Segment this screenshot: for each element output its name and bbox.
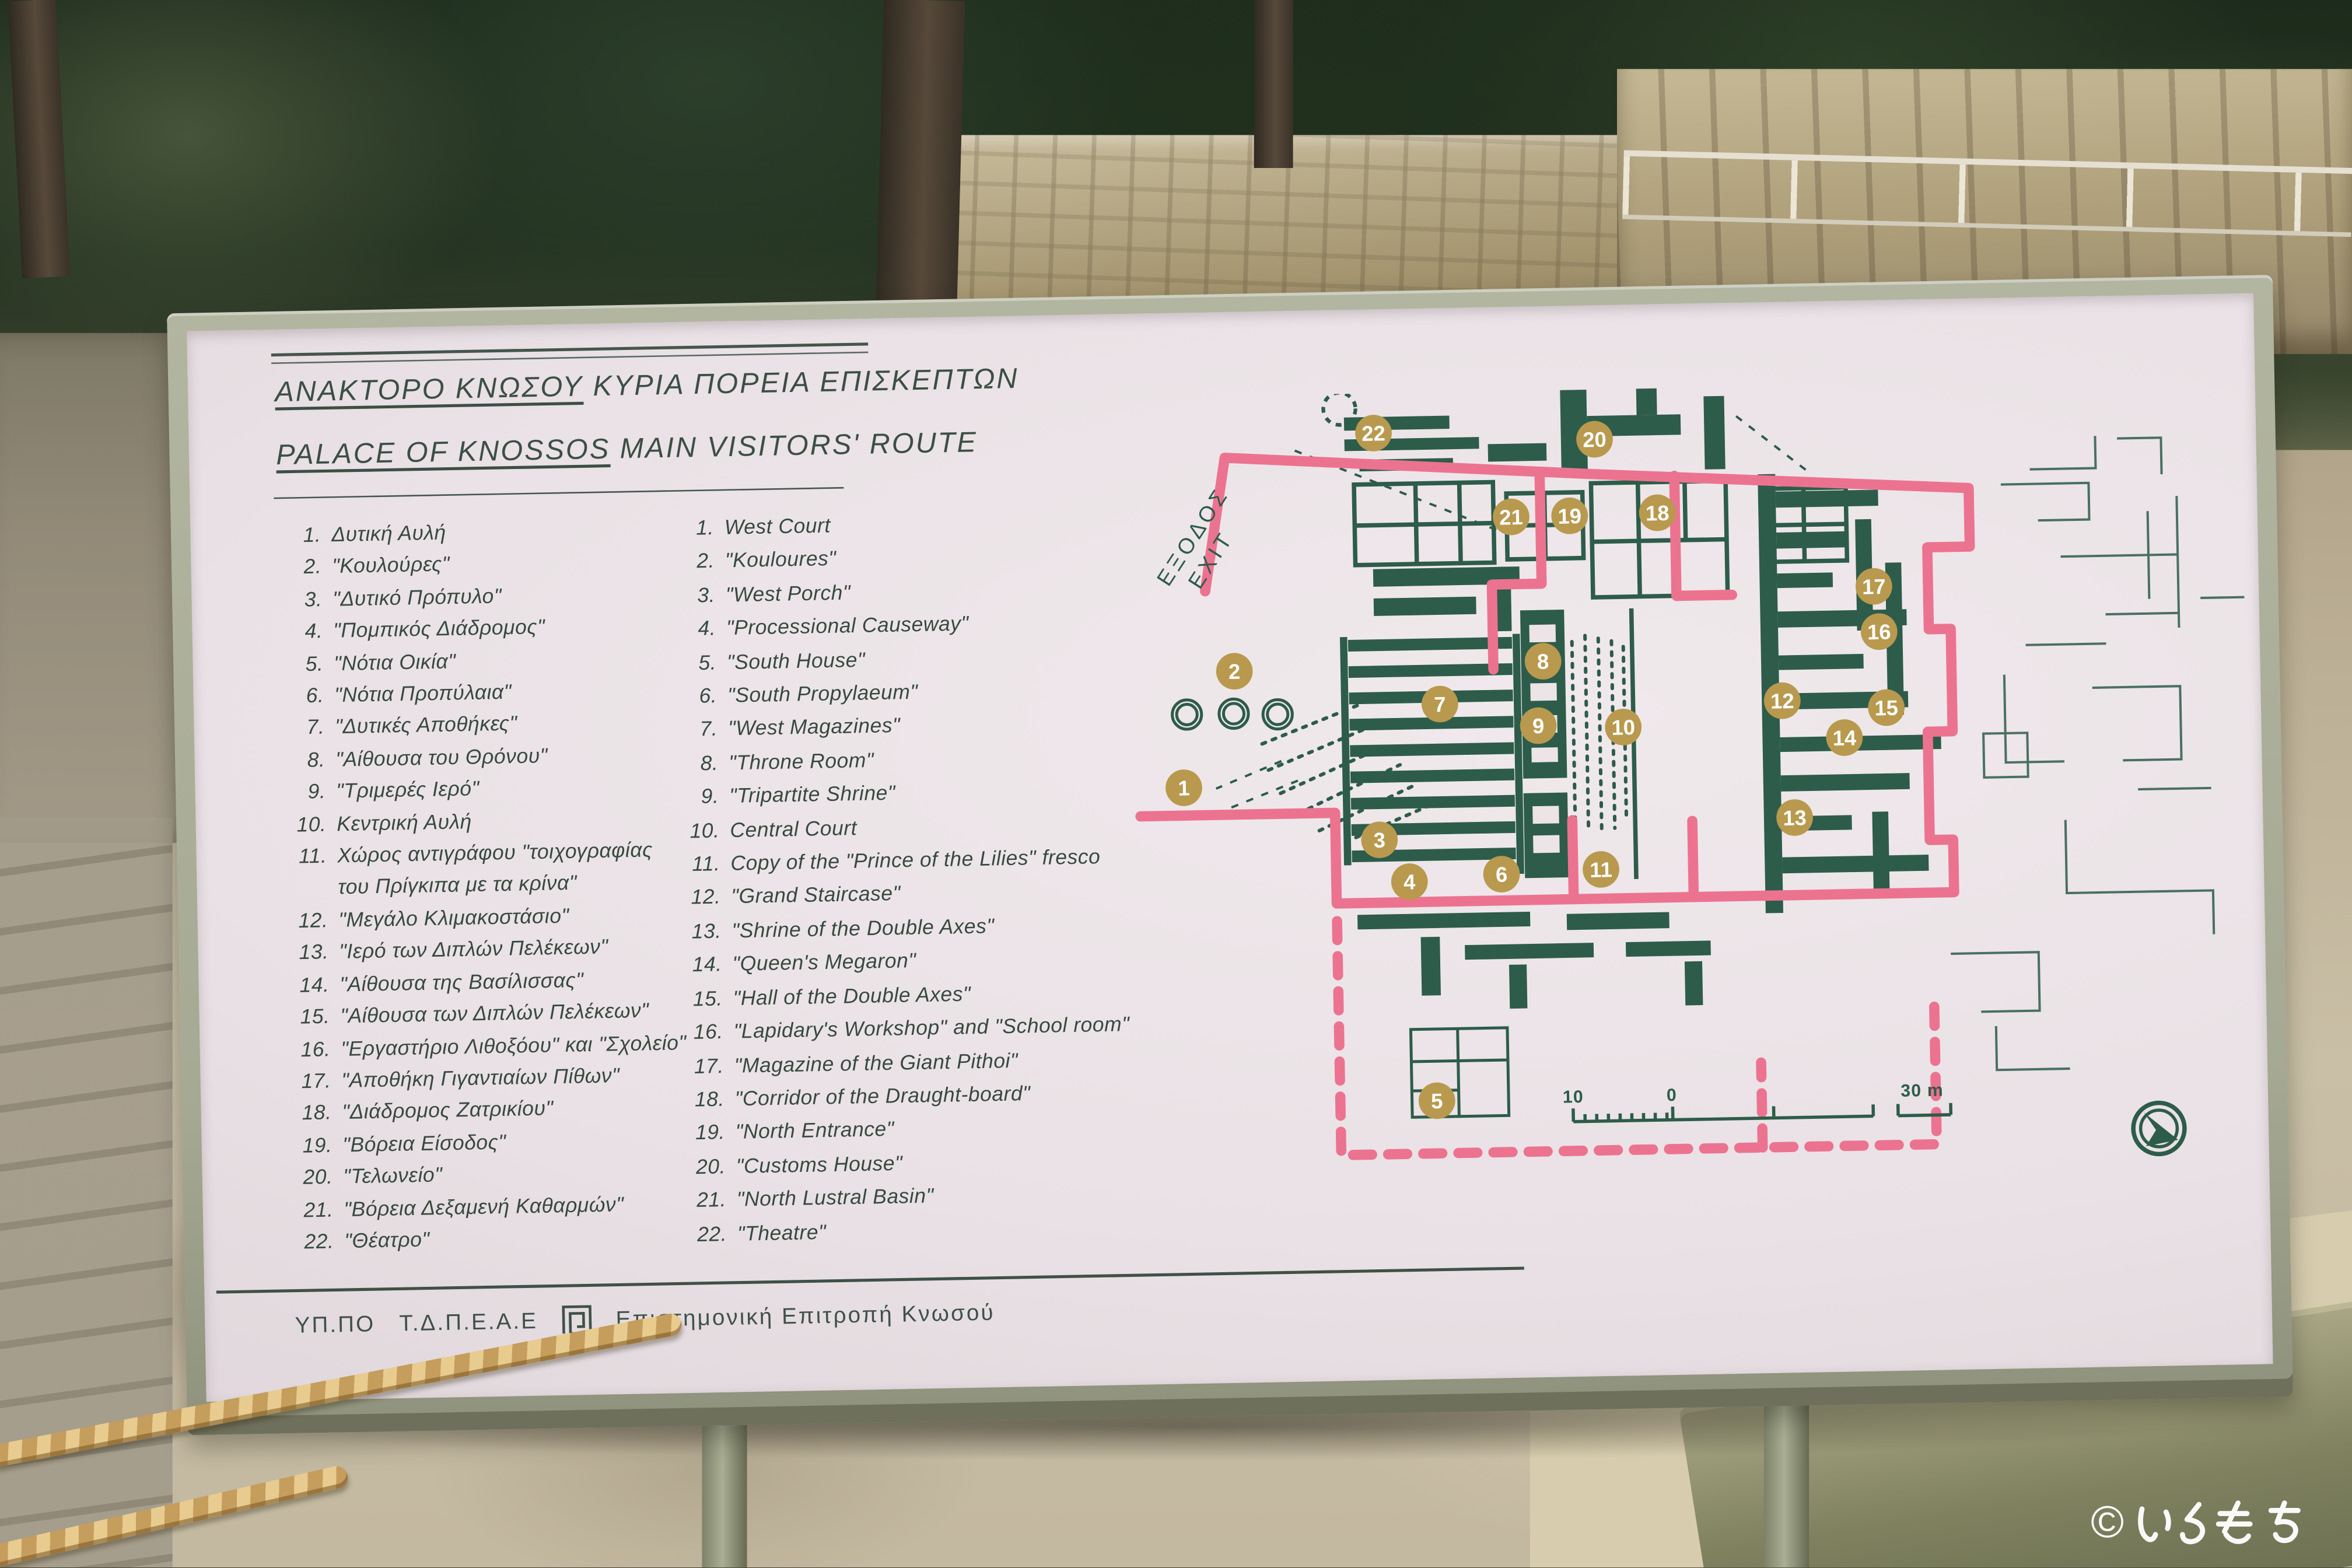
- route-badge-6: 6: [1483, 856, 1520, 893]
- svg-text:14: 14: [1832, 726, 1857, 750]
- scale-0: 0: [1667, 1086, 1678, 1105]
- tree-trunk: [1254, 0, 1293, 168]
- legend-english: 1.West Court2."Kouloures"3."West Porch"4…: [670, 504, 1143, 1252]
- credit-fund: Τ.Δ.Π.Ε.Α.Ε: [399, 1308, 538, 1336]
- divider: [271, 342, 869, 364]
- legend-greek: 1.Δυτική Αυλή2."Κουλούρες"3."Δυτικό Πρόπ…: [277, 512, 740, 1258]
- watermark-kana-icon: [2133, 1499, 2313, 1549]
- svg-text:1: 1: [1178, 776, 1190, 800]
- svg-text:3: 3: [1373, 828, 1385, 852]
- route-badge-2: 2: [1216, 653, 1253, 690]
- title-greek: ΑΝΑΚΤΟΡΟ ΚΝΩΣΟΥ ΚΥΡΙΑ ΠΟΡΕΙΑ ΕΠΙΣΚΕΠΤΩΝ: [275, 364, 1019, 411]
- svg-text:15: 15: [1874, 696, 1898, 720]
- svg-text:16: 16: [1867, 620, 1891, 645]
- svg-text:19: 19: [1557, 504, 1581, 528]
- svg-text:8: 8: [1537, 649, 1549, 673]
- sign-leg: [1764, 1398, 1809, 1568]
- compass-logo-icon: [2133, 1102, 2185, 1154]
- route-badge-21: 21: [1493, 498, 1530, 535]
- photo-of-knossos-sign: ΑΝΑΚΤΟΡΟ ΚΝΩΣΟΥ ΚΥΡΙΑ ΠΟΡΕΙΑ ΕΠΙΣΚΕΠΤΩΝ …: [0, 0, 2352, 1567]
- svg-text:17: 17: [1862, 575, 1886, 599]
- credit-ministry: ΥΠ.ΠΟ: [295, 1311, 375, 1338]
- svg-text:4: 4: [1403, 870, 1416, 894]
- plan-south-front: [1357, 908, 1711, 1012]
- copyright-mark: ©: [2091, 1499, 2124, 1549]
- site-map: ΕΞΟΔΟΣ EXIT 10 0 30 m 12345678910: [1121, 377, 2270, 1196]
- svg-text:5: 5: [1431, 1089, 1443, 1113]
- svg-text:13: 13: [1783, 806, 1807, 830]
- svg-text:7: 7: [1434, 692, 1446, 716]
- information-sign: ΑΝΑΚΤΟΡΟ ΚΝΩΣΟΥ ΚΥΡΙΑ ΠΟΡΕΙΑ ΕΠΙΣΚΕΠΤΩΝ …: [167, 275, 2293, 1435]
- title-english: PALACE OF KNOSSOS MAIN VISITORS' ROUTE: [276, 428, 978, 474]
- route-badge-11: 11: [1583, 850, 1620, 888]
- svg-text:2: 2: [1228, 660, 1241, 684]
- svg-text:12: 12: [1770, 689, 1794, 713]
- svg-text:22: 22: [1361, 421, 1385, 446]
- watermark: ©: [2091, 1499, 2313, 1549]
- plan-central-court-edge: [1632, 608, 1637, 879]
- svg-text:18: 18: [1646, 501, 1669, 526]
- plan-outlying-ruins: [1941, 433, 2253, 1071]
- route-badge-5: 5: [1418, 1082, 1455, 1119]
- map-scale-bar: 10 0 30 m: [1563, 1080, 1951, 1122]
- scale-10: 10: [1563, 1087, 1584, 1107]
- sign-panel: ΑΝΑΚΤΟΡΟ ΚΝΩΣΟΥ ΚΥΡΙΑ ΠΟΡΕΙΑ ΕΠΙΣΚΕΠΤΩΝ …: [187, 293, 2273, 1402]
- exit-label: ΕΞΟΔΟΣ EXIT: [1152, 482, 1257, 605]
- plan-kouloures-pits: [1172, 698, 1293, 731]
- plan-nw-rooms: [1373, 566, 1521, 633]
- route-badge-4: 4: [1391, 863, 1428, 901]
- plan-circle: [1323, 393, 1356, 425]
- svg-text:10: 10: [1611, 715, 1635, 740]
- scale-30m: 30 m: [1901, 1081, 1944, 1101]
- legend-item: 11.Χώρος αντιγράφου "τοιχογραφίαςτου Πρί…: [283, 832, 734, 905]
- route-badge-1: 1: [1165, 769, 1203, 807]
- svg-text:21: 21: [1499, 505, 1523, 530]
- svg-text:9: 9: [1532, 714, 1545, 738]
- route-badge-10: 10: [1605, 708, 1642, 745]
- svg-text:20: 20: [1583, 428, 1606, 452]
- svg-text:6: 6: [1496, 862, 1508, 886]
- divider: [216, 1266, 1524, 1293]
- divider: [274, 487, 843, 499]
- svg-text:11: 11: [1590, 857, 1612, 882]
